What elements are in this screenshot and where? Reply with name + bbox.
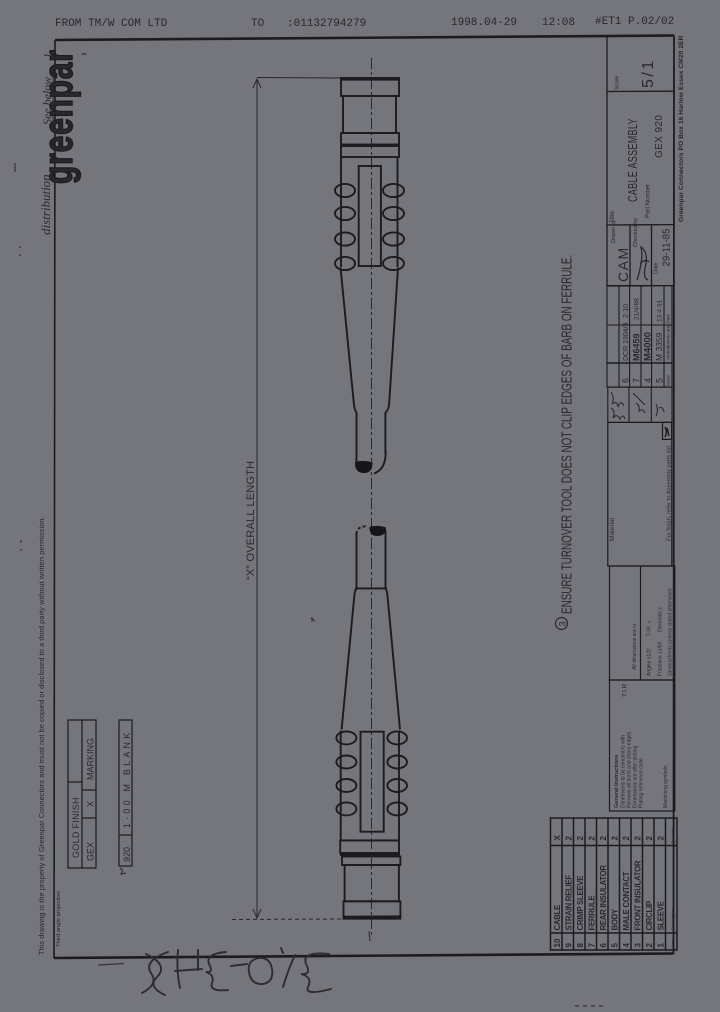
svg-text:2: 2 xyxy=(645,836,654,841)
svg-text:Fractions ±1/64 Decimals: Fractions ±1/64 Decimals ± xyxy=(658,607,664,676)
svg-text:GOLD FINISH: GOLD FINISH xyxy=(71,797,81,858)
svg-text:MARKING: MARKING xyxy=(86,738,96,780)
svg-text:Third angle projection: Third angle projection xyxy=(56,891,62,947)
svg-text:ENSURE TURNOVER TOOL DOES NOT: ENSURE TURNOVER TOOL DOES NOT CLIP EDGES… xyxy=(559,255,576,614)
svg-text:6: 6 xyxy=(599,943,608,948)
svg-text:FROM TM/W COM LTD: FROM TM/W COM LTD xyxy=(55,18,168,30)
svg-text:CABLE: CABLE xyxy=(553,904,562,930)
svg-text:920: 920 xyxy=(122,847,132,862)
svg-text:8: 8 xyxy=(576,943,585,948)
svg-text:STRAIN RELIEF: STRAIN RELIEF xyxy=(564,875,573,931)
svg-text:3: 3 xyxy=(634,943,643,948)
svg-text:9: 9 xyxy=(565,943,574,948)
svg-text:Plating reference code: Plating reference code xyxy=(639,758,645,808)
svg-text:7: 7 xyxy=(632,378,642,383)
svg-text:Scale: Scale xyxy=(615,75,621,90)
svg-text:2: 2 xyxy=(611,836,620,841)
svg-text:2: 2 xyxy=(645,943,654,948)
svg-text:2: 2 xyxy=(622,836,631,841)
svg-text:“X” OVERALL LENGTH: “X” OVERALL LENGTH xyxy=(245,461,257,580)
svg-text:Checked by: Checked by xyxy=(633,218,639,247)
svg-text:2: 2 xyxy=(634,836,643,841)
svg-text:All dimensions are in: All dimensions are in xyxy=(632,624,638,670)
svg-text:FRONT INSULATOR: FRONT INSULATOR xyxy=(633,860,642,930)
svg-text:2: 2 xyxy=(576,836,585,841)
svg-text:Issue: Issue xyxy=(666,375,671,386)
svg-text:T.I.R: T.I.R xyxy=(622,683,629,697)
svg-text:7: 7 xyxy=(588,943,597,948)
svg-text:6: 6 xyxy=(621,378,631,383)
svg-text:2: 2 xyxy=(588,836,597,841)
svg-text:X: X xyxy=(86,801,96,807)
svg-text:1998.04-29: 1998.04-29 xyxy=(451,17,517,29)
svg-text:CAM: CAM xyxy=(615,246,631,282)
svg-text:This drawing is the property o: This drawing is the property of Greenpar… xyxy=(37,516,46,955)
svg-text:1·00 M BLANK: 1·00 M BLANK xyxy=(122,730,132,828)
svg-text:Item: Item xyxy=(671,938,676,947)
svg-text:DCR 1904/9: DCR 1904/9 xyxy=(623,322,630,361)
svg-text:12:08: 12:08 xyxy=(542,17,575,29)
svg-text:FERRULE: FERRULE xyxy=(587,895,596,931)
svg-text:Part Number: Part Number xyxy=(646,184,652,218)
svg-text:5/1: 5/1 xyxy=(640,58,657,88)
svg-text:Date: Date xyxy=(654,262,660,274)
svg-text:10: 10 xyxy=(553,938,562,947)
svg-text:29-11-85: 29-11-85 xyxy=(661,228,672,266)
svg-text:Quantity: Quantity xyxy=(671,826,676,844)
svg-text:TO: TO xyxy=(251,18,265,30)
svg-text:Material: Material xyxy=(609,517,616,541)
svg-text:distribution: distribution xyxy=(38,174,53,235)
svg-text:4: 4 xyxy=(643,378,653,383)
svg-text:Drawn by: Drawn by xyxy=(611,220,617,243)
svg-text:5: 5 xyxy=(611,943,620,948)
svg-text:1: 1 xyxy=(657,943,666,948)
svg-text:For finish, refer to Assembly: For finish, refer to Assembly parts list… xyxy=(667,444,673,541)
svg-text:#ET1 P.02/02: #ET1 P.02/02 xyxy=(595,16,674,28)
svg-text:4: 4 xyxy=(622,943,631,948)
svg-text:General limits (unless stated: General limits (unless stated otherwise) xyxy=(668,588,674,676)
svg-text:21/4/88: 21/4/88 xyxy=(634,298,641,320)
svg-text:3: 3 xyxy=(558,621,568,626)
svg-text:2·10: 2·10 xyxy=(623,304,630,318)
svg-text:2: 2 xyxy=(599,836,608,841)
svg-text:M4000: M4000 xyxy=(643,332,654,361)
svg-text:See below: See below xyxy=(40,77,54,125)
svg-text:Description: Description xyxy=(671,907,676,930)
svg-text:CABLE ASSEMBLY: CABLE ASSEMBLY xyxy=(627,118,641,202)
svg-text:GEX: GEX xyxy=(86,842,96,861)
svg-text:M 3359: M 3359 xyxy=(654,332,664,361)
svg-text:General Instructions: General Instructions xyxy=(614,755,620,809)
svg-text:CIRCLIP: CIRCLIP xyxy=(645,900,654,930)
svg-text:13·4·91: 13·4·91 xyxy=(657,299,664,322)
svg-text:MALE CONTACT: MALE CONTACT xyxy=(622,872,631,931)
svg-text:Amendments and Date: Amendments and Date xyxy=(666,313,671,360)
svg-text:5: 5 xyxy=(655,378,665,383)
svg-text:BODY: BODY xyxy=(610,908,619,930)
svg-text:2: 2 xyxy=(657,836,666,841)
svg-text:2: 2 xyxy=(565,836,574,841)
svg-text:GEX 920: GEX 920 xyxy=(654,115,665,158)
svg-text:CRIMP SLEEVE: CRIMP SLEEVE xyxy=(576,875,585,931)
svg-text:Machining symbols: Machining symbols xyxy=(663,765,669,808)
svg-text:SLEEVE: SLEEVE xyxy=(656,901,665,931)
svg-text:Greenpar Connectors PO Box 16: Greenpar Connectors PO Box 16 Harlow Ess… xyxy=(678,35,685,222)
svg-text::01132794279: :01132794279 xyxy=(287,18,366,30)
svg-text:M6459: M6459 xyxy=(632,333,642,361)
svg-text:REAR INSULATOR: REAR INSULATOR xyxy=(599,865,608,931)
svg-text:Angles ±1/2° T.I.R. ±: Angles ±1/2° T.I.R. ± xyxy=(647,620,653,676)
svg-text:X: X xyxy=(553,835,562,841)
